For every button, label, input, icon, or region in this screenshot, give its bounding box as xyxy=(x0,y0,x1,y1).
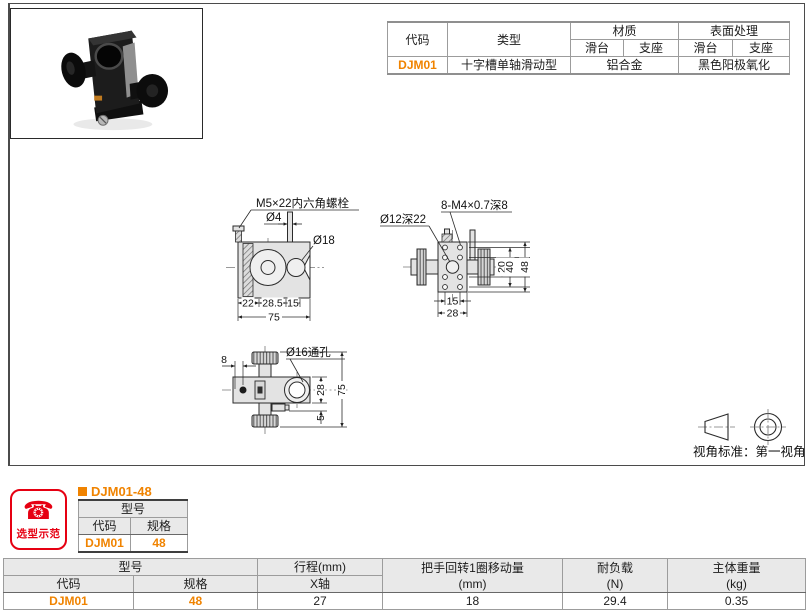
dim-header-model: 型号 xyxy=(4,559,258,576)
spec-subheader-surface-base: 支座 xyxy=(733,40,790,57)
spec-header-code: 代码 xyxy=(388,22,448,57)
example-title: DJM01-48 xyxy=(78,484,152,499)
example-header-spec: 规格 xyxy=(131,518,188,535)
dim-header-load: 耐负载 (N) xyxy=(563,559,668,593)
example-header-code: 代码 xyxy=(79,518,131,535)
spec-header-surface: 表面处理 xyxy=(679,22,790,40)
spec-header-material: 材质 xyxy=(571,22,679,40)
dim-header-movement: 把手回转1圈移动量 (mm) xyxy=(383,559,563,593)
example-cell-spec: 48 xyxy=(131,535,188,553)
spec-cell-surface: 黑色阳极氧化 xyxy=(679,57,790,75)
dim-cell-spec: 48 xyxy=(134,593,258,610)
example-table: 型号 代码 规格 DJM01 48 xyxy=(78,499,188,553)
spec-header-type: 类型 xyxy=(448,22,571,57)
dimension-table: 型号 行程(mm) 把手回转1圈移动量 (mm) 耐负载 (N) 主体重量 (k… xyxy=(3,558,806,610)
dim-header-spec: 规格 xyxy=(134,576,258,593)
spec-subheader-material-slide: 滑台 xyxy=(571,40,624,57)
dim-cell-weight: 0.35 xyxy=(668,593,806,610)
dim-header-code: 代码 xyxy=(4,576,134,593)
dim-header-travel: 行程(mm) xyxy=(258,559,383,576)
spec-cell-material: 铝合金 xyxy=(571,57,679,75)
dim-cell-movement: 18 xyxy=(383,593,563,610)
dim-cell-code: DJM01 xyxy=(4,593,134,610)
product-photo-image xyxy=(11,9,202,138)
dim-cell-load: 29.4 xyxy=(563,593,668,610)
dim-header-weight: 主体重量 (kg) xyxy=(668,559,806,593)
spec-subheader-surface-slide: 滑台 xyxy=(679,40,733,57)
table-row: DJM01 十字槽单轴滑动型 铝合金 黑色阳极氧化 xyxy=(388,57,790,75)
catalog-page: 代码 类型 材质 表面处理 滑台 支座 滑台 支座 DJM01 十字槽单轴滑动型… xyxy=(0,0,808,612)
selection-example-badge: ☎ 选型示范 xyxy=(10,489,67,550)
example-cell-code: DJM01 xyxy=(79,535,131,553)
selection-example-label: 选型示范 xyxy=(17,526,61,541)
spec-subheader-material-base: 支座 xyxy=(624,40,679,57)
table-row: DJM01 48 xyxy=(79,535,188,553)
dim-cell-travel: 27 xyxy=(258,593,383,610)
example-header-model: 型号 xyxy=(79,500,188,518)
example-title-text: DJM01-48 xyxy=(91,484,152,499)
spec-cell-type: 十字槽单轴滑动型 xyxy=(448,57,571,75)
phone-icon: ☎ xyxy=(23,498,54,525)
table-row: DJM01 48 27 18 29.4 0.35 xyxy=(4,593,806,610)
orange-square-bullet xyxy=(78,487,87,496)
dim-header-x-axis: X轴 xyxy=(258,576,383,593)
spec-cell-code: DJM01 xyxy=(388,57,448,75)
product-photo xyxy=(10,8,203,139)
spec-table: 代码 类型 材质 表面处理 滑台 支座 滑台 支座 DJM01 十字槽单轴滑动型… xyxy=(387,21,790,75)
